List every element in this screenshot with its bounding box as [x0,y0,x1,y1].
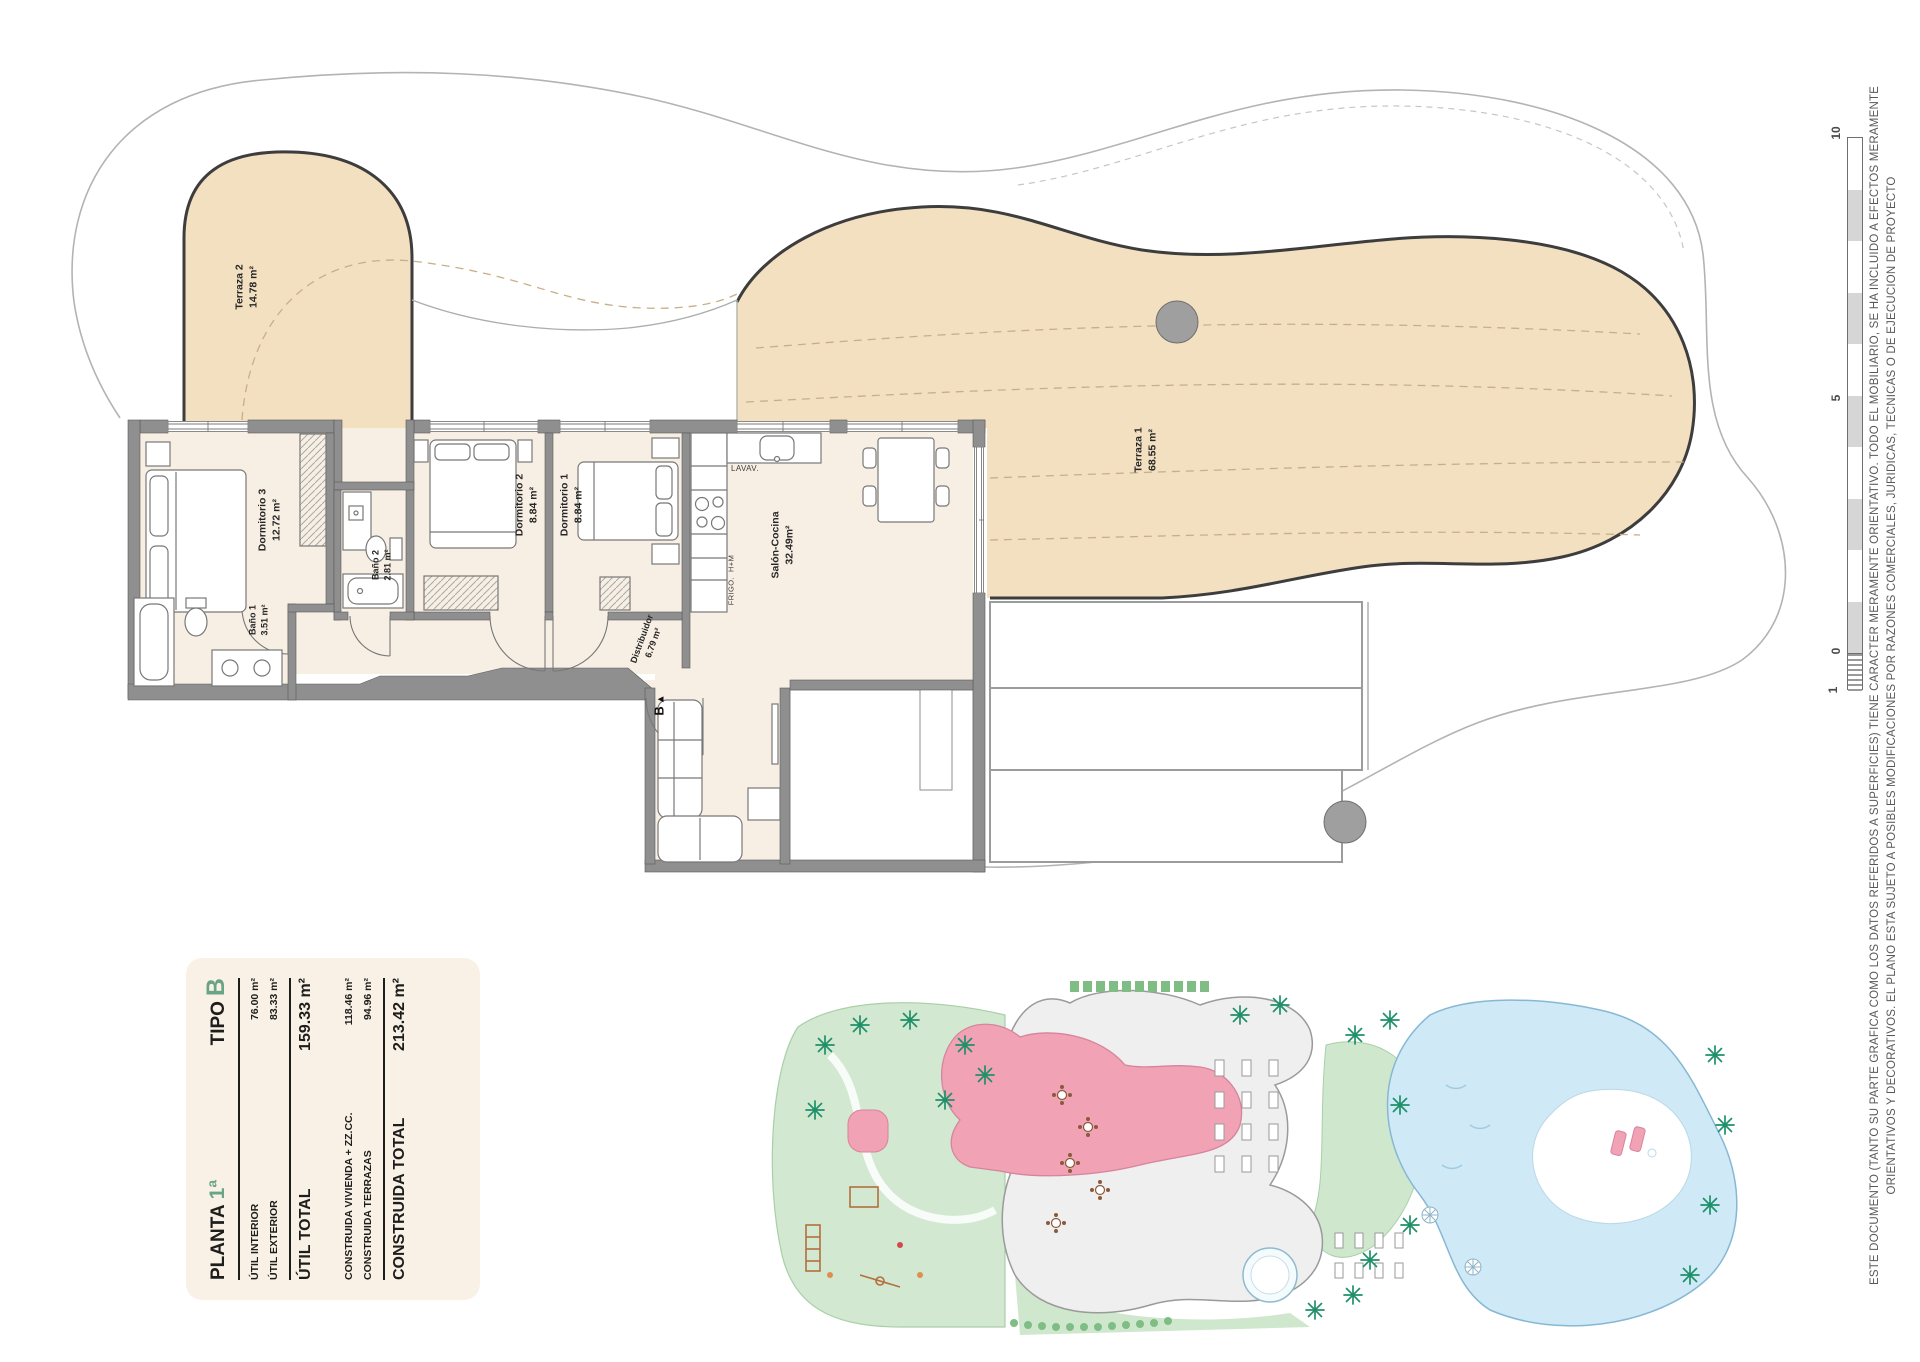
scale-tick-10: 10 [1829,126,1843,139]
panel-title: PLANTA 1ª TIPO B [202,978,231,1280]
scale-tick-5: 5 [1829,395,1843,402]
scale-tick-0: 0 [1829,648,1843,655]
row-construida-total: CONSTRUIDA TOTAL213.42 m² [383,978,409,1280]
row-util-total: ÚTIL TOTAL159.33 m² [289,978,315,1280]
entry-arrow-icon: ▲ [656,692,667,704]
row-util-exterior: ÚTIL EXTERIOR83.33 m² [268,978,280,1280]
entry-marker: B▲ [652,692,667,715]
floor-plan-sheet: Terraza 214.78 m² Dormitorio 312.72 m² B… [0,0,1920,1362]
info-panel: PLANTA 1ª TIPO B ÚTIL INTERIOR76.00 m² Ú… [186,958,480,1300]
room-label-bano-1: Baño 13.51 m² [247,604,270,635]
room-label-bano-2: Baño 22.81 m² [370,549,393,580]
room-label-dormitorio-1: Dormitorio 18.84 m² [558,474,585,536]
label-lavav: LAVAV. [731,464,759,473]
row-util-interior: ÚTIL INTERIOR76.00 m² [249,978,261,1280]
row-construida-terrazas: CONSTRUIDA TERRAZAS94.96 m² [362,978,374,1280]
scale-bar [1847,137,1863,690]
disclaimer-text: ESTE DOCUMENTO (TANTO SU PARTE GRAFICA C… [1867,13,1901,1358]
scale-tick-1: 1 [1826,687,1840,694]
highlighted-terrace [848,1110,888,1152]
tipo-label: TIPO [208,1001,230,1045]
room-label-terraza-2: Terraza 214.78 m² [233,264,260,309]
room-label-dormitorio-3: Dormitorio 312.72 m² [256,489,283,551]
scale-bar-fine-divisions [1848,653,1862,691]
tipo-letter: B [202,978,231,996]
row-construida-vivienda: CONSTRUIDA VIVIENDA + ZZ.CC.118.46 m² [343,978,355,1280]
planta-label: PLANTA [208,1204,230,1280]
room-label-terraza-1: Terraza 168.55 m² [1132,427,1159,472]
room-label-salon-cocina: Salón-Cocina32.49m² [769,511,796,578]
label-frigo-hm: FRIGO. H+M [727,555,736,605]
divider [238,978,240,1280]
pool-area [1388,1000,1737,1326]
room-label-dormitorio-2: Dormitorio 28.84 m² [513,474,540,536]
planta-number: 1ª [206,1180,230,1199]
